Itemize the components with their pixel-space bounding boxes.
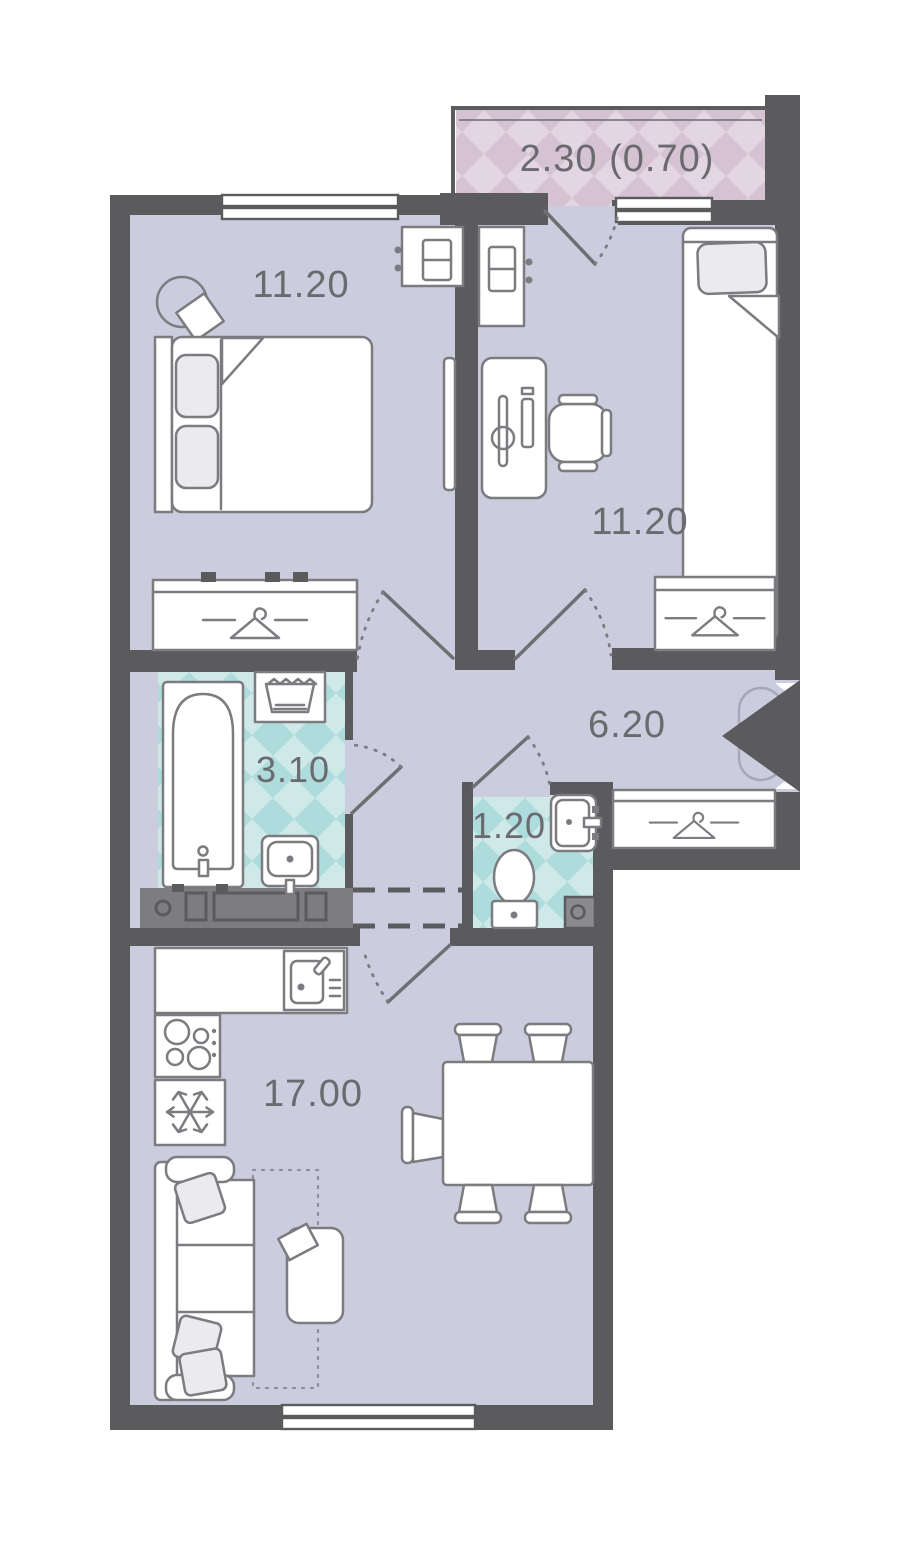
doorway-bedroom2 [515, 648, 612, 672]
sink-tap [592, 833, 599, 840]
wall-divider-cap [455, 650, 515, 670]
handle-dot [526, 259, 533, 266]
bathtub-foot [172, 884, 184, 892]
wall-kitchen-top-a [110, 928, 360, 946]
bathroom-sink [262, 836, 318, 894]
wall-right-column [593, 782, 613, 1430]
coffee-table [278, 1224, 343, 1323]
label-kitchen: 17.00 [263, 1073, 363, 1115]
wardrobe-anchor [293, 572, 308, 582]
wardrobe-bedroom1 [153, 572, 357, 650]
pillow [176, 355, 218, 417]
stove-knob [212, 1041, 216, 1045]
doorway-bathroom [345, 740, 354, 814]
chair-armrest [559, 395, 597, 404]
pillow [697, 242, 767, 294]
floor-plan-drawing: 2.30 (0.70) 11.20 11.20 6.20 3.10 1.20 1… [0, 0, 900, 1557]
chair-seat [549, 404, 607, 462]
bathtub-foot [216, 884, 228, 892]
monitor-icon [499, 396, 507, 466]
doorway-bedroom1 [357, 650, 455, 674]
label-balcony: 2.30 (0.70) [520, 138, 715, 180]
chair-seat [459, 1035, 497, 1062]
service-shaft [140, 888, 353, 928]
bathtub [163, 682, 243, 892]
chair-seat [529, 1185, 567, 1212]
chair-back [402, 1107, 413, 1163]
window-bedroom2-bar2 [616, 211, 712, 222]
window-bedroom2-bar1 [616, 198, 712, 209]
wc-sink [551, 795, 601, 851]
washer-body [255, 672, 325, 722]
label-bedroom2: 11.20 [591, 501, 688, 543]
stove [155, 1015, 220, 1077]
pillow [176, 426, 218, 488]
chair-back [455, 1024, 501, 1035]
toilet-bowl [494, 850, 534, 904]
dining-table [443, 1062, 593, 1185]
chair-seat [529, 1035, 567, 1062]
handle-dot [395, 265, 402, 272]
chair-back [602, 410, 611, 456]
wall-corner-block [765, 95, 800, 225]
bed-headboard [155, 337, 172, 512]
handle-dot [526, 277, 533, 284]
wall-kitchen-top-b [450, 928, 593, 946]
cabinet [479, 227, 533, 326]
sink-pedestal [286, 880, 294, 894]
doorway-wc [473, 778, 550, 797]
label-hallway: 6.20 [588, 704, 666, 746]
mirror [444, 358, 455, 490]
chair-seat [413, 1113, 443, 1162]
chair-back [455, 1212, 501, 1223]
wall-bedroom1-bathroom [110, 650, 357, 672]
label-bedroom1: 11.20 [252, 264, 349, 306]
sofa-back [155, 1162, 178, 1400]
window-living-bar1 [282, 1405, 475, 1416]
sink-drain [287, 856, 294, 863]
wardrobe-hall-lower [613, 790, 775, 848]
wall-right-lower [775, 790, 800, 870]
nightstand [395, 227, 464, 286]
chair-back [525, 1212, 571, 1223]
desk-item [522, 399, 533, 447]
toilet-button [511, 912, 518, 919]
window-bedroom1-bar2 [222, 208, 398, 219]
drain-box [565, 897, 595, 928]
washing-machine [255, 672, 325, 722]
wardrobe-anchor [201, 572, 216, 582]
fridge [155, 1080, 225, 1145]
sink-spout [584, 818, 601, 827]
stove-knob [212, 1053, 216, 1057]
desk [482, 358, 546, 498]
chair-seat [459, 1185, 497, 1212]
doorway-kitchen [360, 926, 450, 948]
kitchen-counter [155, 948, 347, 1013]
floor-plan-page: 2.30 (0.70) 11.20 11.20 6.20 3.10 1.20 1… [0, 0, 900, 1557]
window-bedroom1-bar1 [222, 195, 398, 206]
wall-under-wardrobe [613, 848, 775, 870]
desk-top [482, 358, 546, 498]
wardrobe-hall-upper [655, 577, 775, 650]
window-living-bar2 [282, 1418, 475, 1429]
wall-hall-bedroom2 [612, 648, 775, 670]
kitchen-sink-drain [298, 984, 305, 991]
desk-item-small [522, 388, 533, 394]
sink-drain [566, 819, 572, 825]
pillow [179, 1348, 228, 1397]
wall-right-upper [775, 225, 800, 682]
double-bed [155, 337, 372, 512]
wall-bathroom-right-b [345, 812, 353, 890]
wall-left [110, 195, 130, 1430]
label-wc: 1.20 [472, 805, 546, 846]
sink-tap [592, 806, 599, 813]
handle-dot [395, 247, 402, 254]
floor-drain [565, 897, 595, 928]
wall-bathroom-right-a [345, 672, 353, 742]
chair-back [525, 1024, 571, 1035]
stove-knob [212, 1029, 216, 1033]
toilet [492, 850, 537, 928]
wardrobe-anchor [265, 572, 280, 582]
chair-armrest [559, 462, 597, 471]
label-bathroom: 3.10 [256, 749, 330, 790]
sofa [155, 1157, 254, 1400]
bathtub-tap [199, 860, 208, 876]
